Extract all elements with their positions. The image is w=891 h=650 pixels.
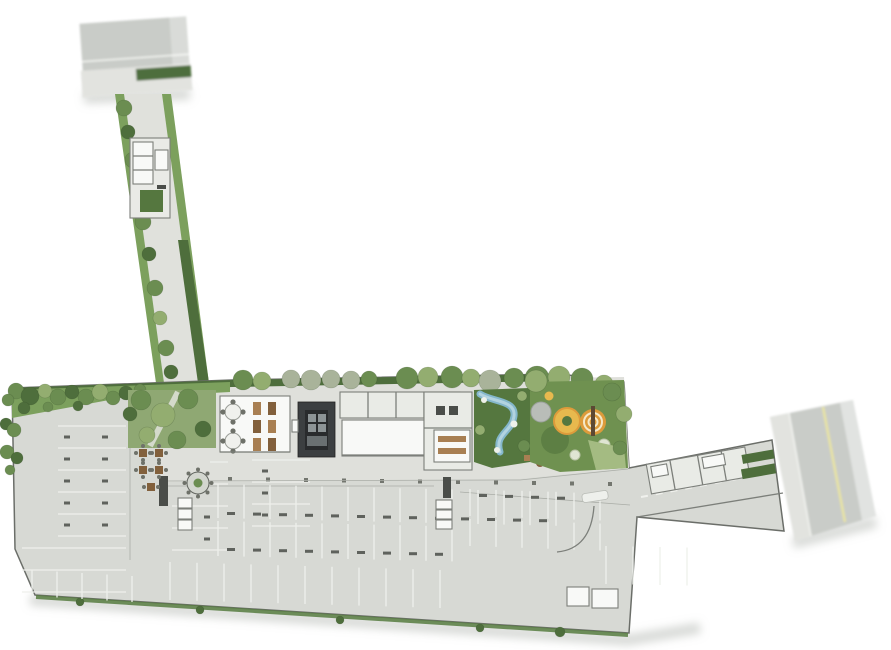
north-street bbox=[77, 14, 196, 98]
water-garden bbox=[474, 388, 530, 468]
communal-round-table bbox=[183, 468, 214, 499]
playground bbox=[525, 370, 632, 472]
stair-flight-west bbox=[159, 476, 168, 506]
play-donut bbox=[554, 408, 580, 434]
kitchen-counter bbox=[438, 436, 466, 442]
storage-cells-mid bbox=[436, 500, 452, 529]
entry-driveway bbox=[115, 94, 209, 383]
storage-boxes-south bbox=[567, 587, 618, 608]
gatehouse-garden bbox=[140, 190, 163, 212]
storage-cells-west bbox=[178, 498, 192, 530]
gatehouse bbox=[130, 138, 170, 218]
play-sand-circle bbox=[531, 402, 551, 422]
street-fade bbox=[169, 14, 194, 65]
west-garden bbox=[123, 389, 216, 449]
party-room bbox=[220, 396, 290, 454]
gate-barrier bbox=[157, 185, 166, 189]
site-plan-drawing bbox=[0, 0, 891, 650]
elevator-core bbox=[292, 402, 335, 457]
play-spring-toy bbox=[545, 392, 554, 401]
east-street bbox=[770, 400, 876, 541]
kitchen-service-block bbox=[424, 392, 472, 470]
main-plan-body bbox=[0, 366, 784, 637]
stair-flight-mid bbox=[443, 477, 451, 498]
site-plan-canvas bbox=[0, 0, 891, 650]
kitchen-counter bbox=[438, 448, 466, 454]
great-hall bbox=[342, 420, 424, 456]
